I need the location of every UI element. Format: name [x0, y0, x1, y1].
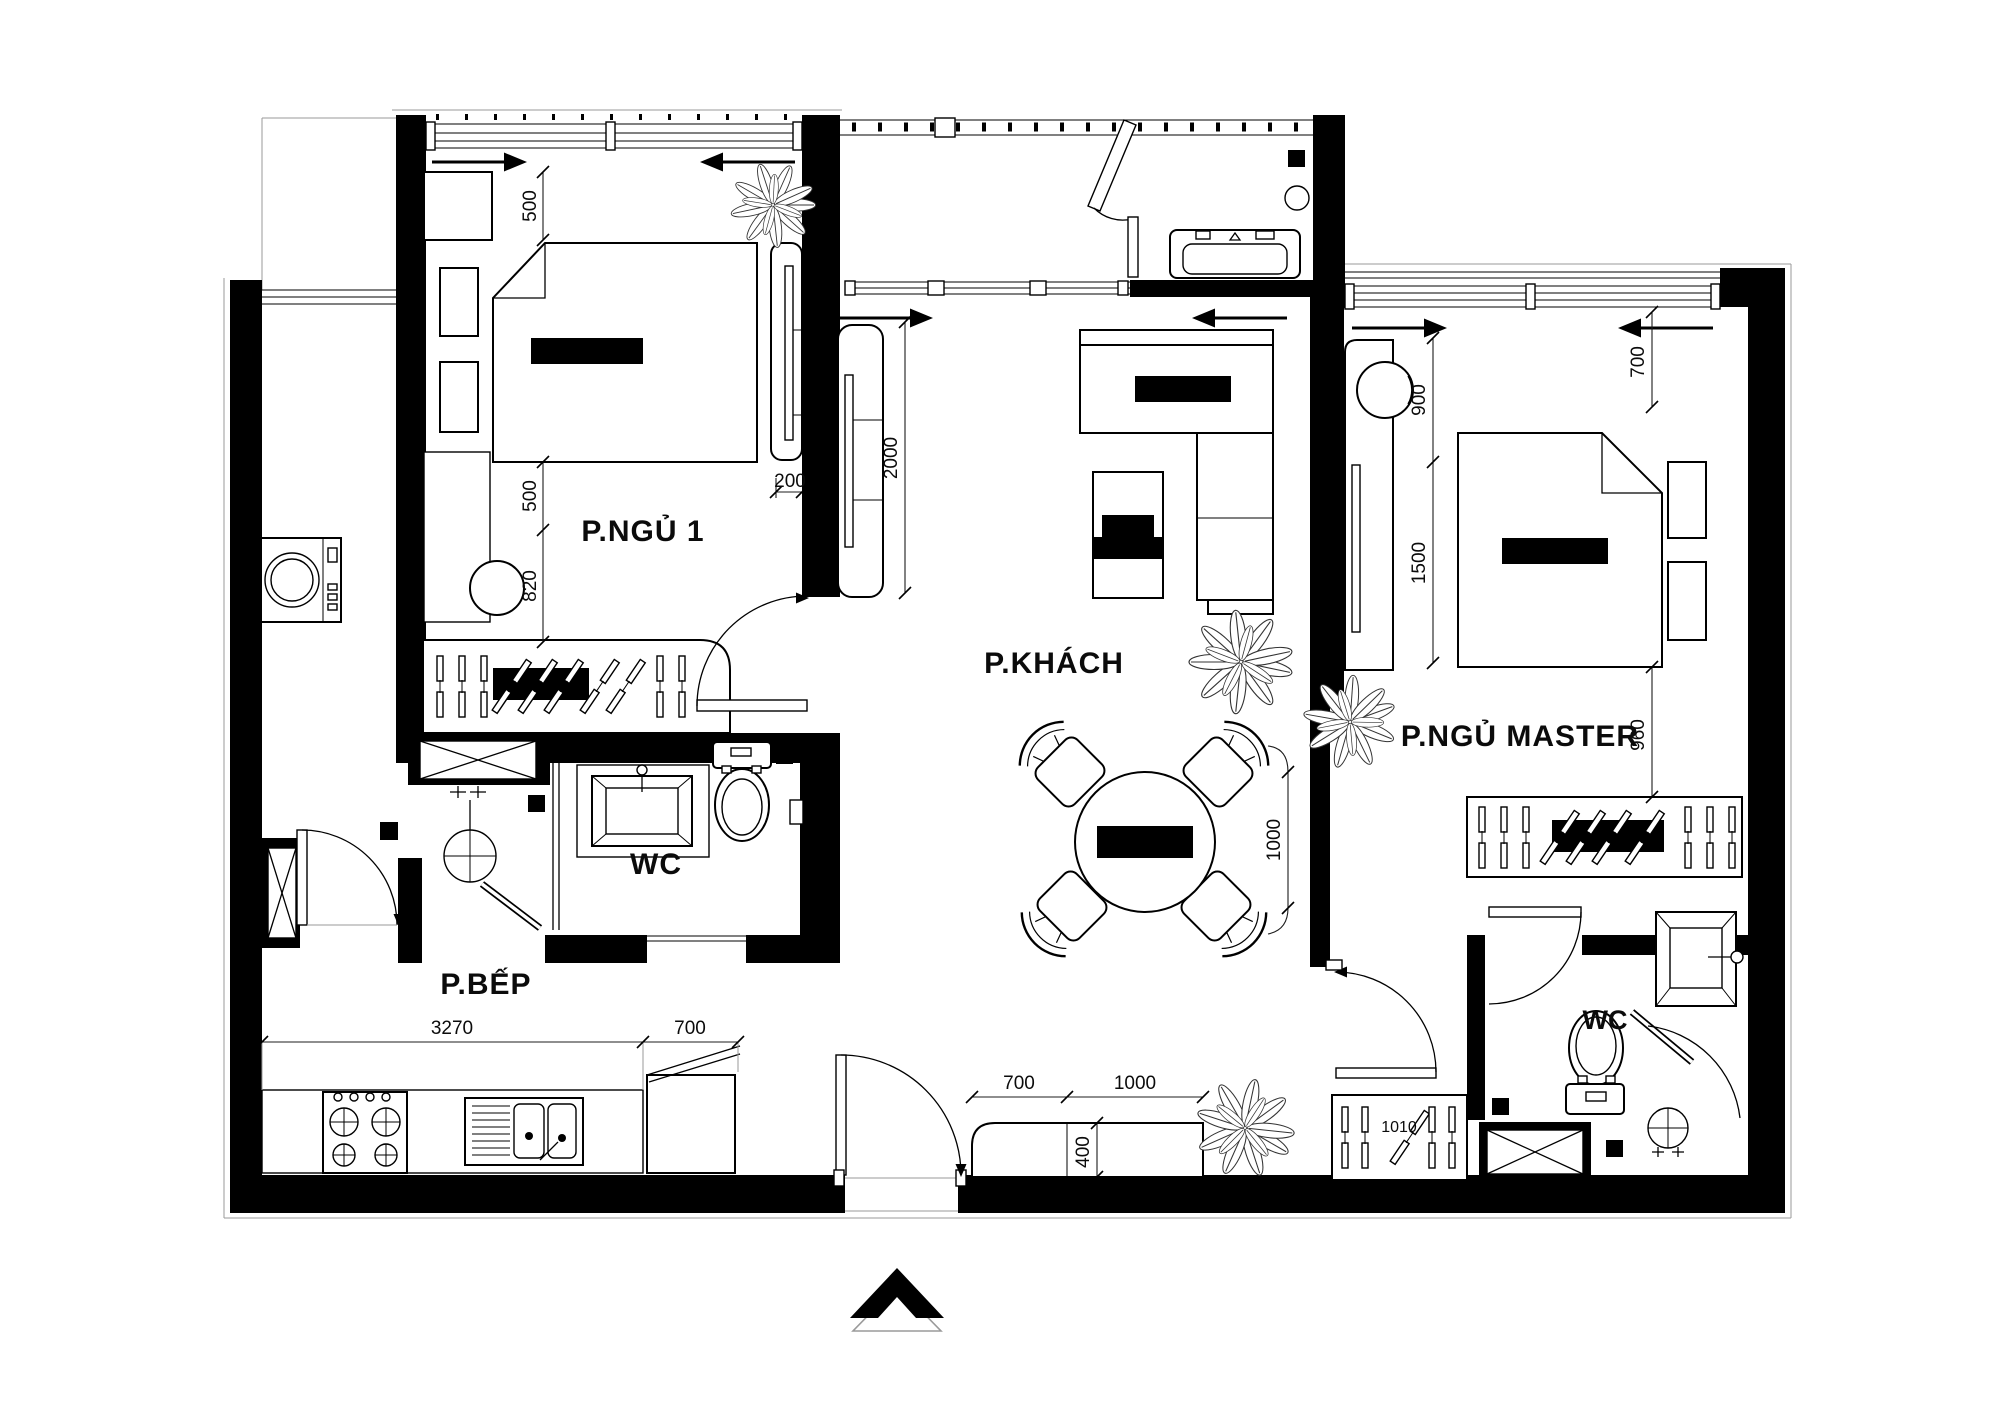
dim-700-master: 700 — [1628, 346, 1649, 378]
room-label-wc-master: WC — [1583, 1005, 1628, 1035]
living-tv-console — [838, 325, 883, 597]
dim-700-shoe: 700 — [1003, 1073, 1035, 1094]
floor-drain-utility — [380, 822, 398, 840]
washing-machine-balcony — [1170, 230, 1300, 278]
bedroom1-wardrobe — [423, 640, 730, 733]
dim-bed1-mid-500: 500 — [520, 480, 541, 512]
room-label-bedroom1: P.NGỦ 1 — [581, 514, 704, 548]
dim-1000-wall: 1000 — [1264, 819, 1285, 861]
master-desk-stool — [1345, 340, 1413, 670]
door-balcony — [1088, 120, 1138, 277]
wc1-vanity — [577, 765, 709, 857]
kitchen-sink — [465, 1098, 583, 1165]
dim-200: 200 — [774, 471, 806, 492]
dim-700-fridge: 700 — [674, 1018, 706, 1039]
plant — [1179, 600, 1303, 724]
balcony-sliding-door — [845, 281, 1130, 295]
bedroom1-tv-unit — [771, 243, 802, 460]
dim-1010: 1010 — [1381, 1119, 1417, 1136]
floorplan-canvas: 500 500 820 200 2000 1000 900 1500 700 9… — [0, 0, 2000, 1414]
dim-bed1-820: 820 — [520, 570, 541, 602]
dim-400: 400 — [1073, 1136, 1094, 1168]
ac-ledge-louver — [262, 290, 396, 304]
plant — [1290, 662, 1410, 782]
floor-drain-balcony — [1288, 150, 1305, 167]
bedroom1-bed — [440, 243, 757, 462]
door-wc-master — [1489, 907, 1581, 1004]
bedroom1-closet — [424, 172, 492, 240]
room-label-living: P.KHÁCH — [984, 646, 1124, 680]
room-label-master: P.NGỦ MASTER — [1401, 719, 1639, 753]
floorplan-sheet: 500 500 820 200 2000 1000 900 1500 700 9… — [0, 0, 2000, 1414]
fridge — [647, 1046, 740, 1173]
balcony-bucket — [1285, 186, 1309, 210]
master-window — [1345, 272, 1785, 309]
dimension-master-left-chain: 900 1500 — [1409, 332, 1439, 669]
room-label-wc1: WC — [630, 848, 682, 881]
door-main-entrance — [834, 1055, 967, 1211]
dim-2000: 2000 — [881, 437, 902, 479]
dim-bed1-top-500: 500 — [520, 190, 541, 222]
washing-machine-utility — [261, 538, 341, 622]
dimension-living-wall-1000: 1000 — [1264, 746, 1294, 934]
dim-1000-shoe: 1000 — [1114, 1073, 1156, 1094]
north-arrow-icon — [850, 1268, 944, 1331]
dimension-living-2000: 2000 — [881, 316, 911, 599]
balcony-railing — [840, 118, 1313, 137]
dim-900: 900 — [1409, 384, 1430, 416]
room-label-kitchen: P.BẾP — [440, 967, 531, 1001]
master-bed — [1458, 433, 1706, 667]
bedroom1-desk-stool — [424, 452, 524, 622]
kitchen-stove — [323, 1092, 407, 1173]
dim-1500: 1500 — [1409, 542, 1430, 584]
door-utility-kitchen — [297, 830, 405, 927]
dining-table — [1011, 713, 1277, 965]
floor-drain-wcm — [1492, 1098, 1509, 1115]
kitchen-counter — [262, 1090, 643, 1173]
living-armchair — [1092, 472, 1163, 598]
door-master-bedroom — [1326, 960, 1436, 1078]
wcm-vanity — [1656, 912, 1743, 1006]
master-wardrobe — [1467, 797, 1742, 877]
dim-3270: 3270 — [431, 1018, 473, 1039]
floor-drain-wc1 — [776, 747, 793, 764]
master-wardrobe-2 — [1332, 1095, 1467, 1180]
bedroom1-window — [426, 117, 802, 150]
